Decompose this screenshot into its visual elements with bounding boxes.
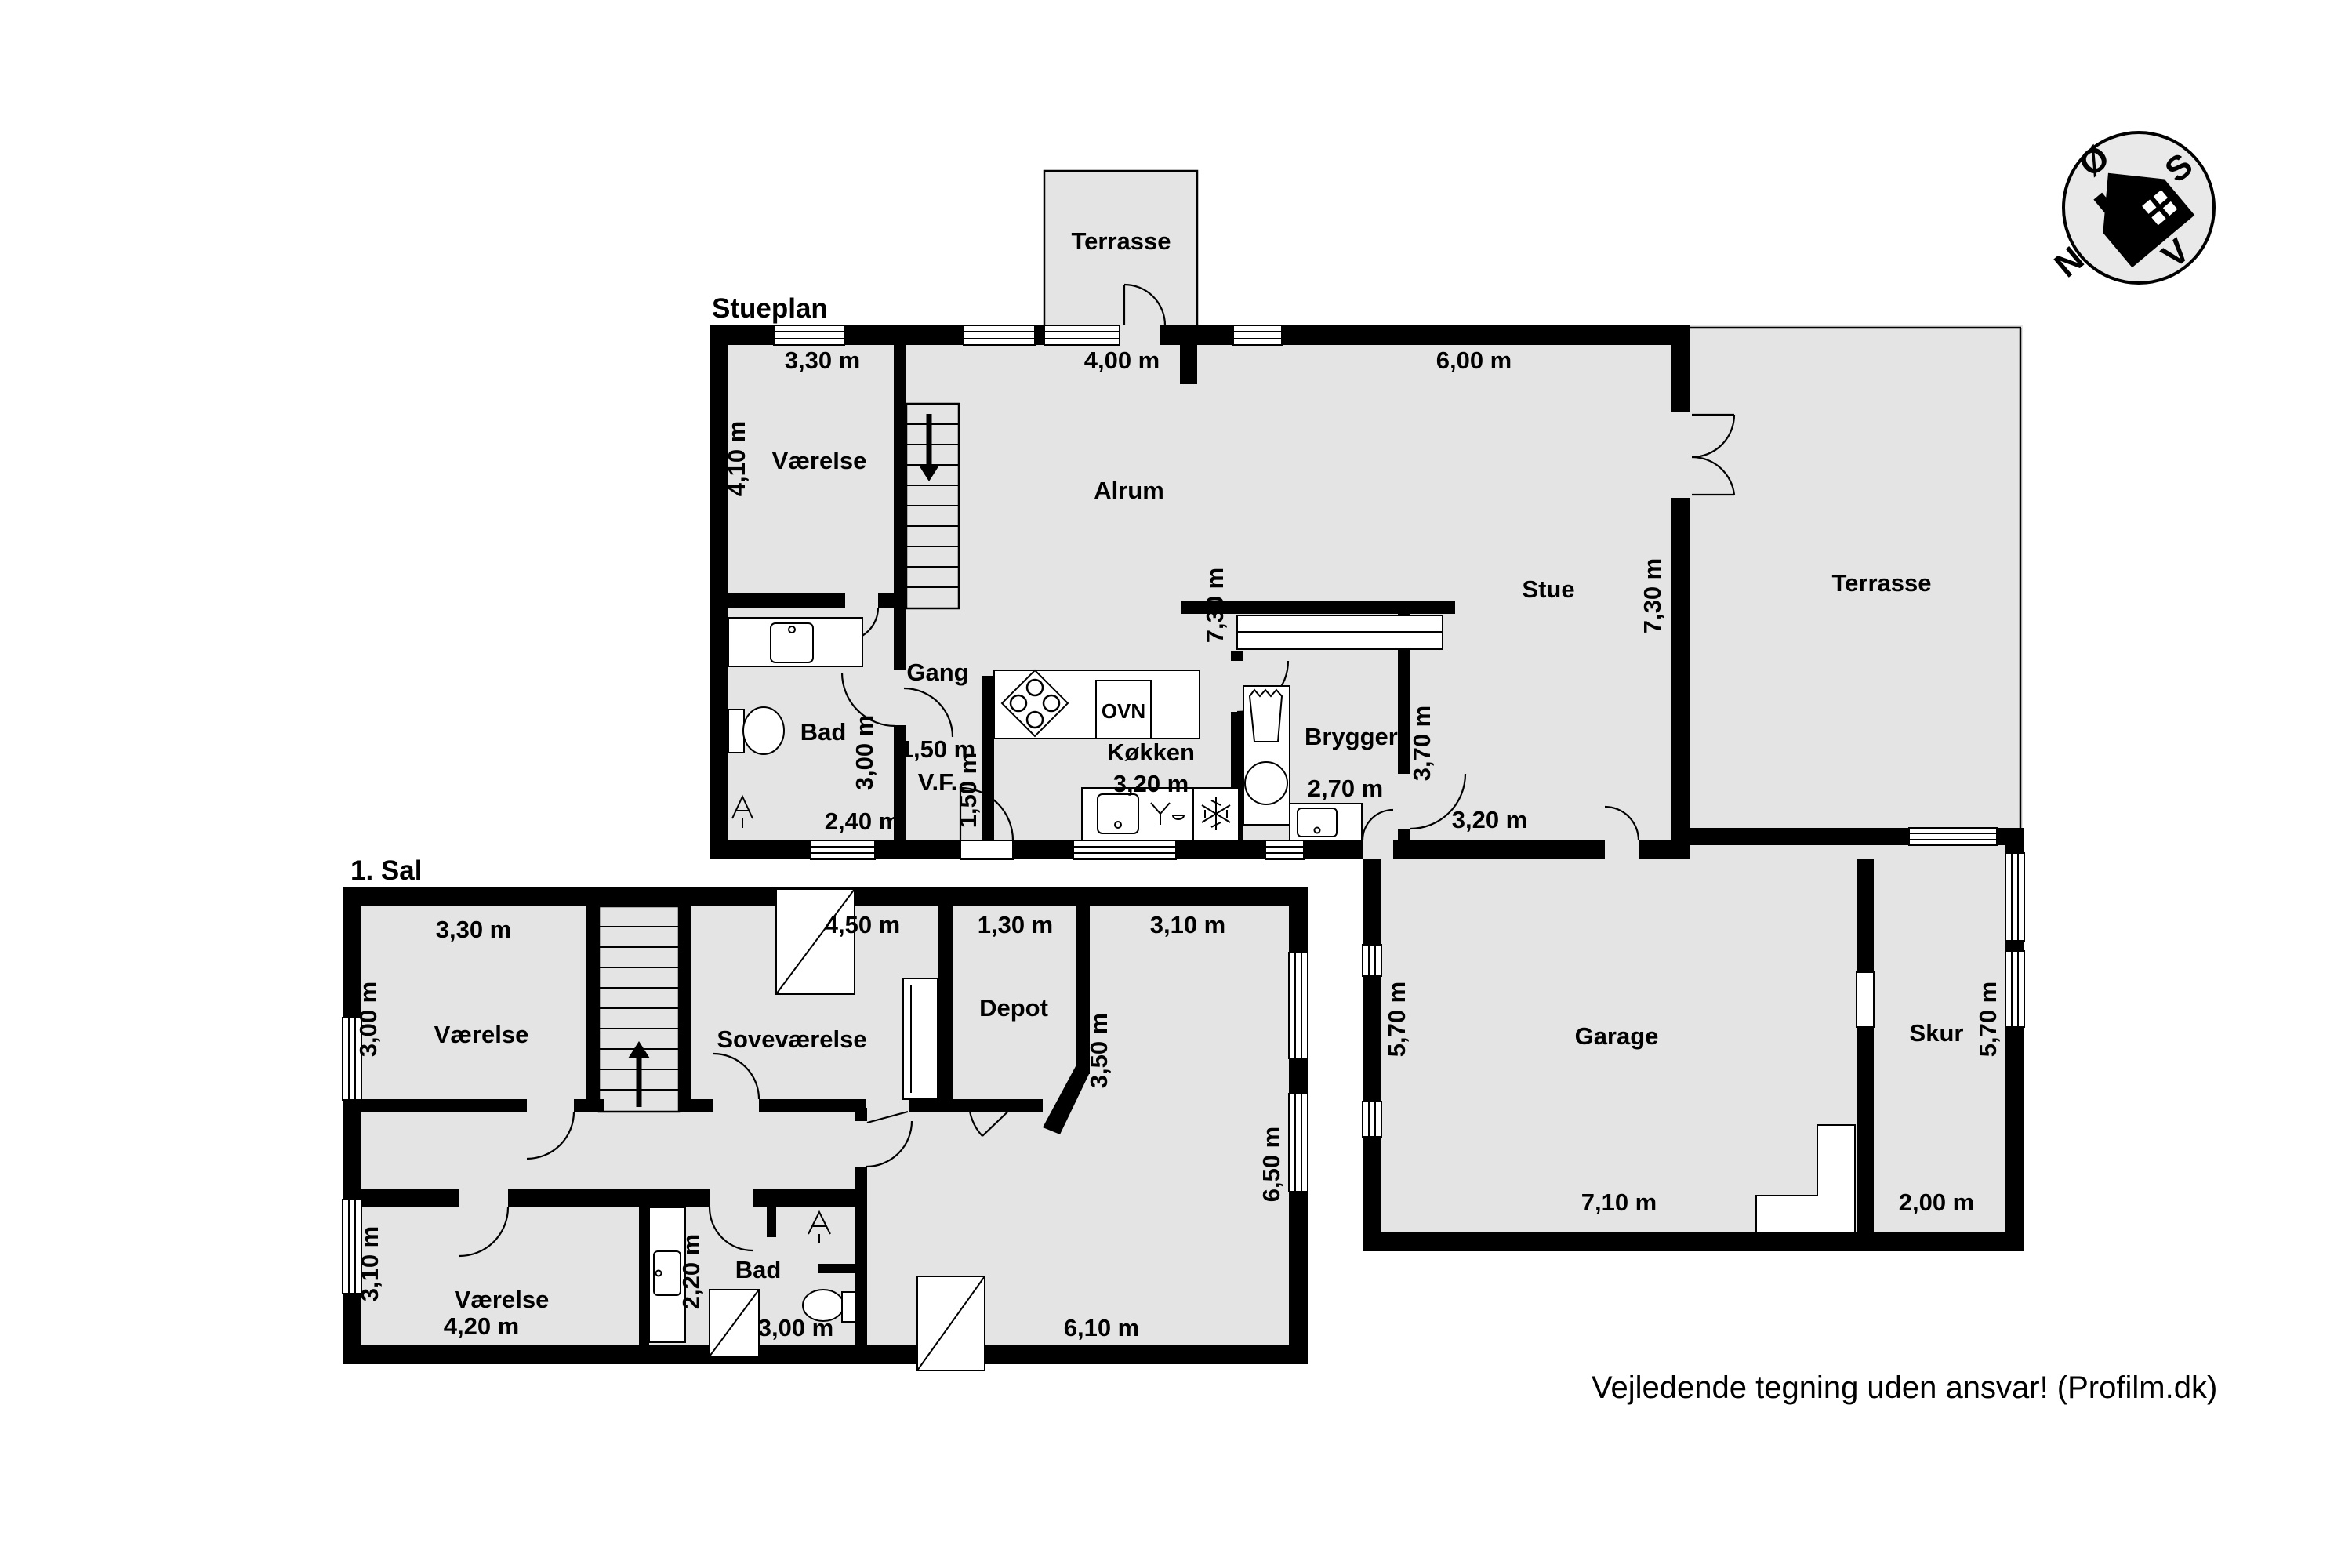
dim-sove-width: 4,50 m bbox=[825, 911, 901, 938]
wall bbox=[759, 1099, 866, 1112]
dim-bad-sal-width: 3,00 m bbox=[758, 1314, 834, 1341]
dim-east-height: 6,50 m bbox=[1258, 1127, 1285, 1203]
sink-icon bbox=[771, 623, 813, 662]
wall bbox=[753, 1189, 855, 1207]
wall bbox=[1857, 1027, 1874, 1232]
wall bbox=[361, 1189, 459, 1207]
dim-bad-width: 2,40 m bbox=[825, 808, 901, 835]
wall bbox=[1289, 887, 1308, 953]
wall bbox=[878, 593, 906, 608]
dim-east-width: 3,10 m bbox=[1150, 911, 1226, 938]
dim-bad-corridor: 2,20 m bbox=[677, 1234, 705, 1310]
room-label-bad: Bad bbox=[800, 718, 847, 746]
window bbox=[1044, 325, 1120, 345]
wall bbox=[1857, 859, 1874, 972]
wall bbox=[855, 1108, 867, 1121]
room-label-bad-sal: Bad bbox=[735, 1256, 782, 1283]
wall bbox=[710, 325, 728, 859]
wall bbox=[909, 1099, 1043, 1112]
toilet-bowl bbox=[743, 707, 784, 754]
floorplan-page: Stueplan Terrasse 3,30 m 4,00 m 6,00 m 4… bbox=[0, 0, 2352, 1568]
wall bbox=[343, 1100, 361, 1200]
dim-south-width: 6,10 m bbox=[1064, 1314, 1140, 1341]
wall bbox=[679, 906, 691, 1101]
wall bbox=[938, 906, 953, 1099]
shower-icon bbox=[710, 1290, 759, 1356]
dim-bad-height: 3,00 m bbox=[851, 715, 878, 791]
wall bbox=[1363, 859, 1381, 945]
dim-stue-width: 6,00 m bbox=[1436, 347, 1512, 374]
door-threshold bbox=[960, 840, 1013, 859]
skylight-icon bbox=[917, 1276, 985, 1370]
room-label-depot: Depot bbox=[979, 994, 1048, 1022]
room-label-garage: Garage bbox=[1575, 1022, 1659, 1050]
wall bbox=[1035, 325, 1044, 345]
room-label-vaerelse-nw: Værelse bbox=[434, 1021, 529, 1048]
door-gap-garage-skur bbox=[1857, 972, 1874, 1027]
window bbox=[1289, 953, 1308, 1058]
wall bbox=[1289, 1058, 1308, 1094]
wall bbox=[1690, 828, 1909, 845]
floorplan-drawing: Stueplan Terrasse 3,30 m 4,00 m 6,00 m 4… bbox=[0, 0, 2352, 1568]
window bbox=[1233, 325, 1282, 345]
room-label-koekken: Køkken bbox=[1107, 739, 1195, 766]
skylight-icon bbox=[776, 889, 855, 994]
dim-sal-vaerelse-sw-height: 3,10 m bbox=[356, 1226, 383, 1302]
wall bbox=[2005, 845, 2024, 853]
window bbox=[811, 840, 875, 859]
wall bbox=[1304, 840, 1363, 859]
sink-icon bbox=[654, 1251, 681, 1295]
dim-sal-vaerelse-sw-width: 4,20 m bbox=[444, 1312, 520, 1340]
wall bbox=[1289, 1192, 1308, 1364]
dim-bryggers-height: 3,70 m bbox=[1408, 706, 1436, 782]
floor-title-stueplan: Stueplan bbox=[712, 293, 828, 324]
wall bbox=[767, 1207, 776, 1237]
window bbox=[964, 325, 1035, 345]
wall bbox=[361, 1099, 527, 1112]
dim-skur-width: 2,00 m bbox=[1899, 1189, 1975, 1216]
wall bbox=[1363, 976, 1381, 1102]
wall bbox=[1282, 325, 1690, 345]
dim-stue-height: 7,30 m bbox=[1639, 558, 1666, 634]
wall bbox=[1874, 1232, 2024, 1251]
wall bbox=[508, 1189, 710, 1207]
room-label-vaerelse-sw: Værelse bbox=[455, 1286, 550, 1313]
room-label-gang: Gang bbox=[906, 659, 968, 686]
wall bbox=[1231, 651, 1243, 661]
wall bbox=[875, 840, 960, 859]
wall bbox=[2005, 941, 2024, 951]
room-label-skur: Skur bbox=[1910, 1019, 1964, 1047]
disclaimer-text: Vejledende tegning uden ansvar! (Profilm… bbox=[1592, 1370, 2217, 1405]
wall bbox=[1671, 498, 1690, 840]
dim-garage-height: 5,70 m bbox=[1383, 982, 1410, 1058]
dim-koekken-width: 3,20 m bbox=[1113, 770, 1189, 797]
dim-garage-width: 7,10 m bbox=[1581, 1189, 1657, 1216]
room-label-sovevaerelse: Soveværelse bbox=[717, 1025, 866, 1053]
room-label-stue: Stue bbox=[1522, 575, 1574, 603]
wall bbox=[1363, 1137, 1381, 1232]
wall bbox=[679, 1099, 713, 1112]
window bbox=[1265, 840, 1304, 859]
toilet-tank bbox=[728, 710, 744, 753]
dim-vf-height: 1,50 m bbox=[954, 753, 982, 829]
wall bbox=[1363, 1232, 1874, 1251]
wall bbox=[710, 593, 845, 608]
wall bbox=[1393, 840, 1605, 859]
wall bbox=[1997, 828, 2024, 845]
wall bbox=[1176, 840, 1265, 859]
wall bbox=[894, 345, 906, 670]
wall bbox=[1180, 345, 1197, 384]
window bbox=[2005, 853, 2024, 941]
wall bbox=[1013, 840, 1073, 859]
room-label-alrum: Alrum bbox=[1094, 477, 1164, 504]
window bbox=[1073, 840, 1176, 859]
wall bbox=[844, 325, 964, 345]
dim-vaerelse-width: 3,30 m bbox=[785, 347, 861, 374]
bad-vanity bbox=[728, 618, 862, 666]
toilet-ground-icon bbox=[728, 707, 784, 754]
oven-label: OVN bbox=[1102, 699, 1145, 723]
wall bbox=[639, 1207, 649, 1345]
wall bbox=[818, 1264, 855, 1273]
wall bbox=[1160, 325, 1233, 345]
floor-title-sal: 1. Sal bbox=[350, 855, 422, 886]
wall bbox=[1639, 840, 1690, 859]
compass-rose: Ø S V N bbox=[2047, 132, 2214, 285]
room-label-vf: V.F. bbox=[918, 768, 958, 796]
washing-machine-icon bbox=[1245, 762, 1287, 804]
room-label-terrasse-east: Terrasse bbox=[1832, 569, 1932, 597]
dim-depot-height: 3,50 m bbox=[1085, 1013, 1112, 1089]
window bbox=[2005, 951, 2024, 1027]
dim-bryggers-width: 2,70 m bbox=[1308, 775, 1384, 802]
wall bbox=[586, 906, 599, 1101]
wardrobe bbox=[903, 978, 938, 1099]
wall bbox=[343, 1345, 1308, 1364]
dim-vaerelse-height: 4,10 m bbox=[723, 421, 750, 497]
room-label-vaerelse: Værelse bbox=[772, 447, 867, 474]
room-label-bryggers: Bryggers bbox=[1305, 723, 1411, 750]
wall bbox=[2005, 1027, 2024, 1251]
dim-alrum-width: 4,00 m bbox=[1084, 347, 1160, 374]
wall bbox=[710, 840, 811, 859]
dim-sal-vaerelse-nw-width: 3,30 m bbox=[436, 916, 512, 943]
dim-depot-width: 1,30 m bbox=[978, 911, 1054, 938]
wall bbox=[1398, 829, 1410, 840]
wall bbox=[1671, 325, 1690, 412]
dim-alrum-height: 7,30 m bbox=[1201, 568, 1229, 644]
dim-stue-south: 3,20 m bbox=[1452, 806, 1528, 833]
window bbox=[774, 325, 844, 345]
window bbox=[1909, 828, 1997, 845]
toilet-tank bbox=[842, 1292, 856, 1322]
window bbox=[1363, 945, 1381, 976]
wall bbox=[982, 676, 994, 840]
dim-skur-height: 5,70 m bbox=[1974, 982, 2002, 1058]
dim-sal-vaerelse-nw-height: 3,00 m bbox=[354, 982, 382, 1058]
window bbox=[1289, 1094, 1308, 1192]
room-label-terrasse-top: Terrasse bbox=[1072, 227, 1171, 255]
window bbox=[1363, 1102, 1381, 1137]
